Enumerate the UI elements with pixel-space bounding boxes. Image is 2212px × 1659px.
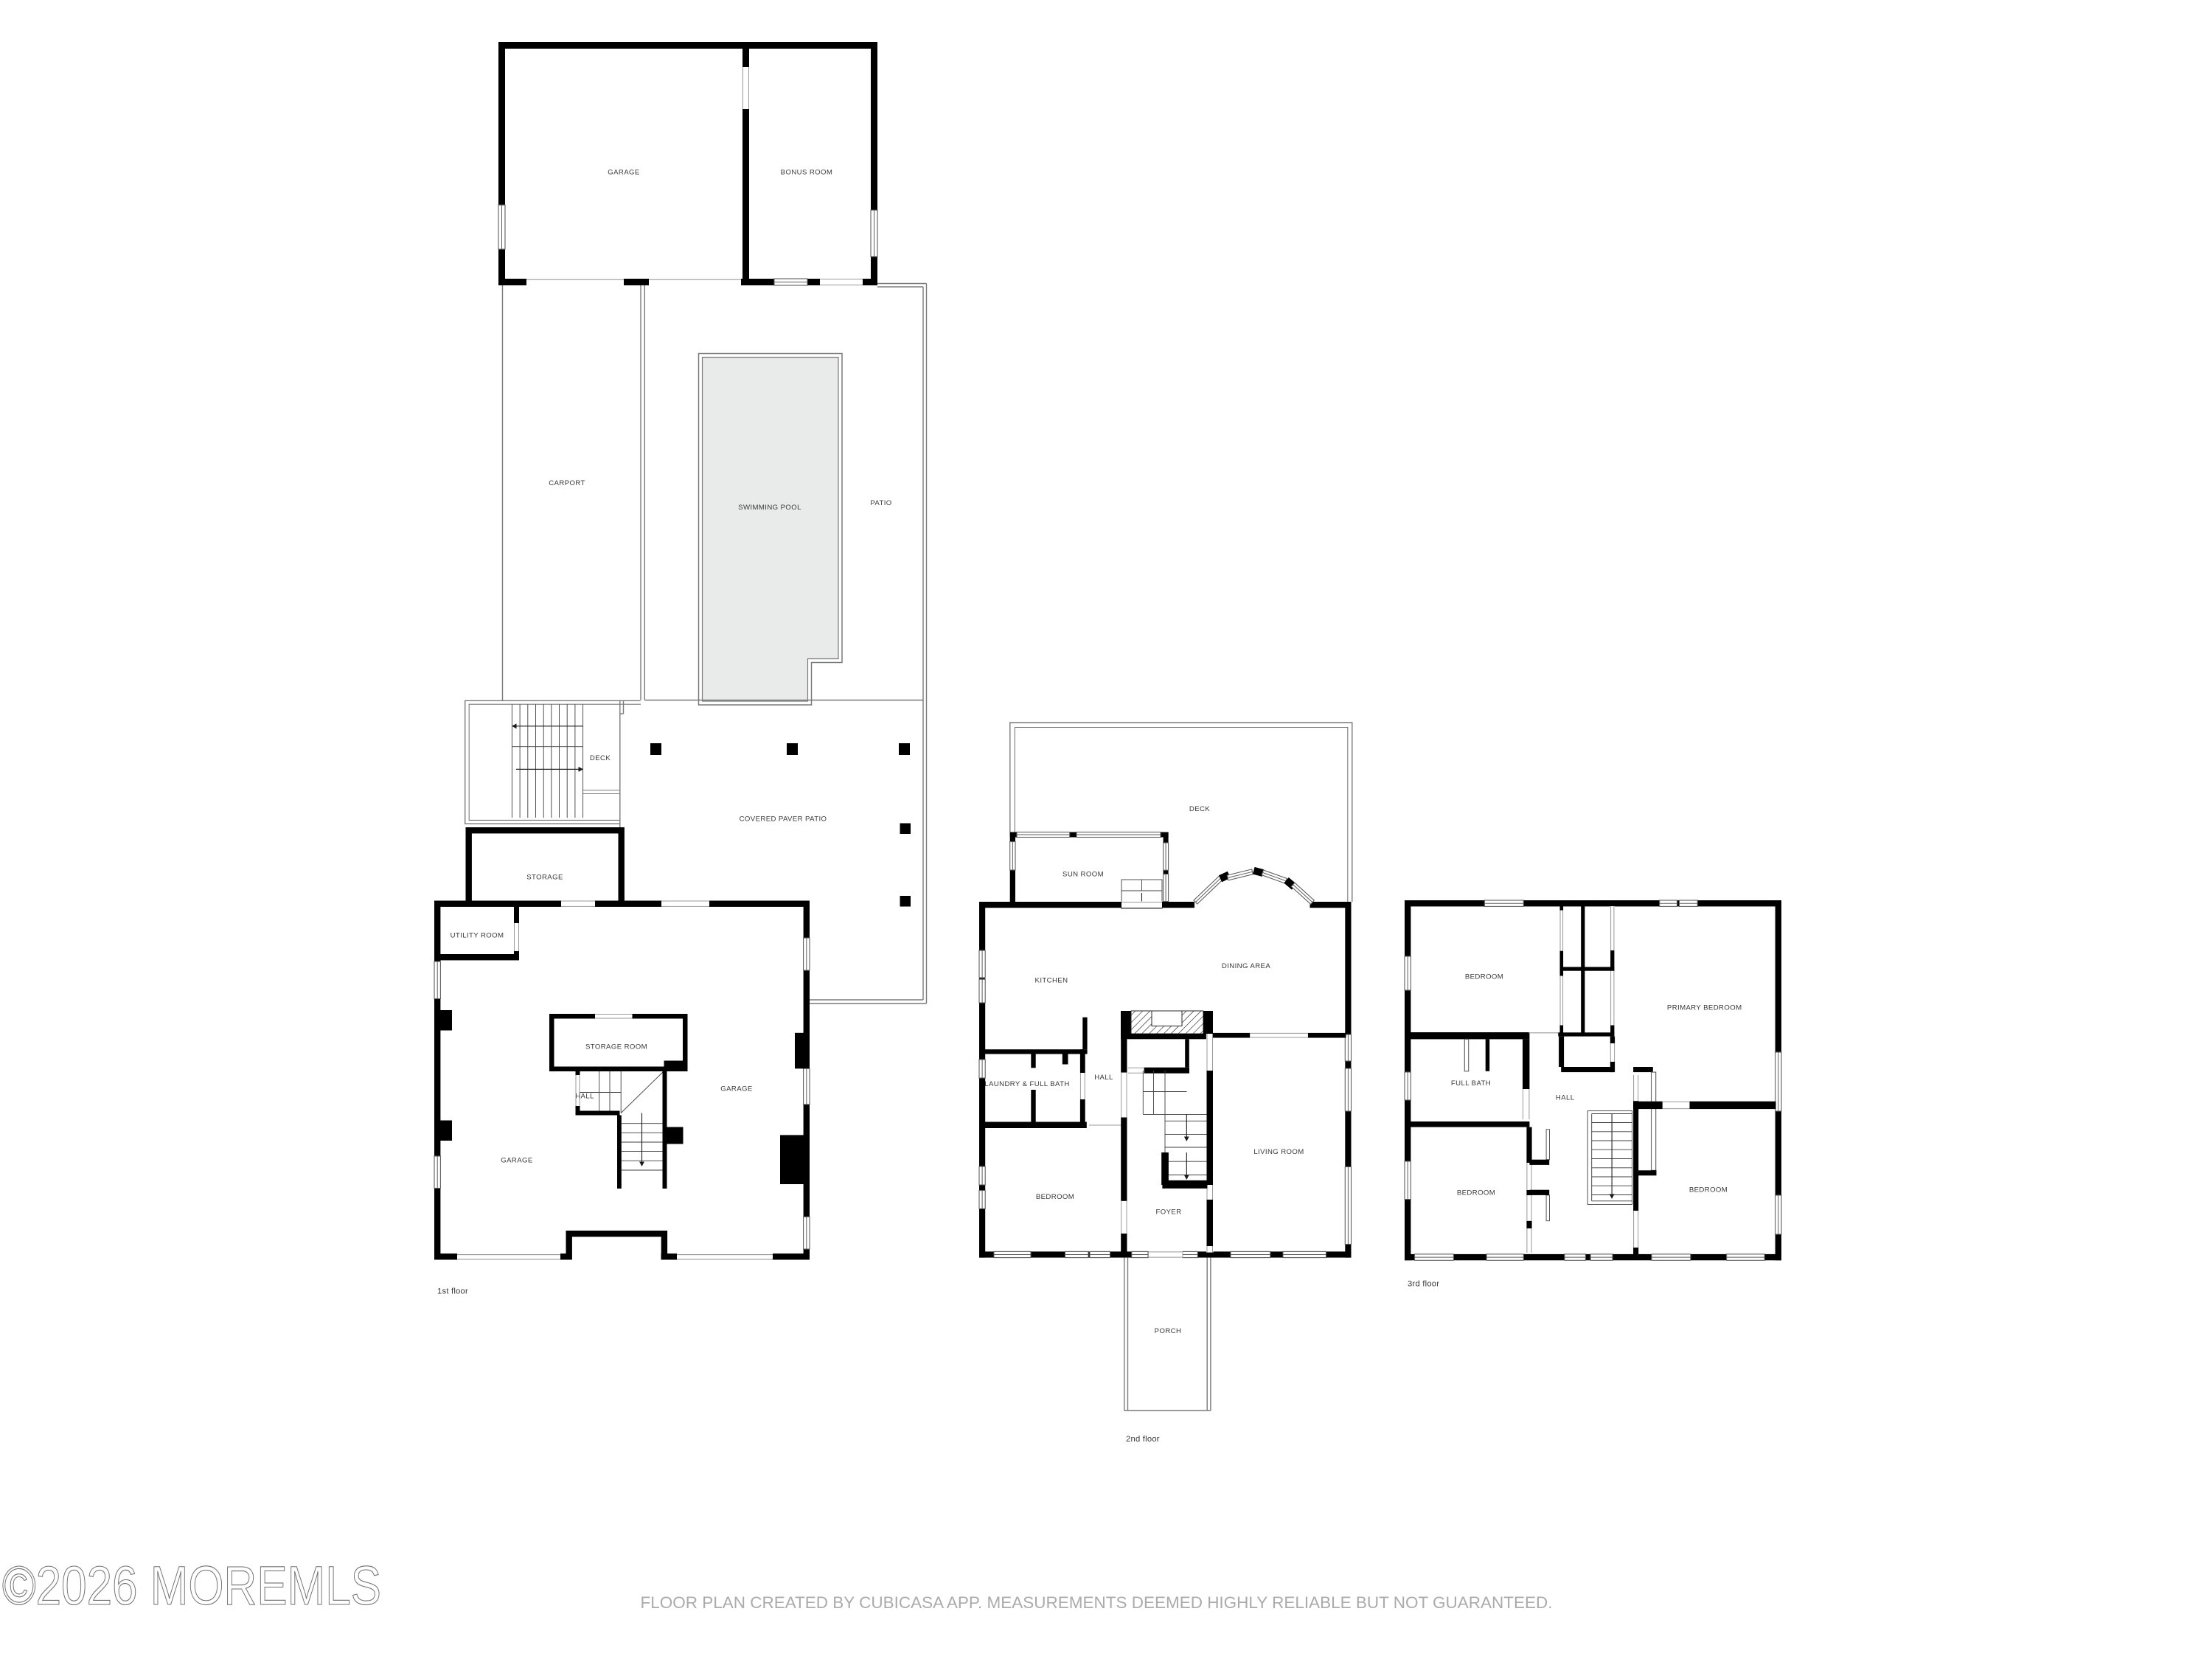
svg-text:BEDROOM: BEDROOM [1457,1189,1495,1197]
svg-text:GARAGE: GARAGE [608,169,639,177]
svg-text:SUN ROOM: SUN ROOM [1062,871,1104,879]
svg-text:BEDROOM: BEDROOM [1465,973,1503,981]
svg-text:GARAGE: GARAGE [720,1085,752,1093]
svg-text:HALL: HALL [1094,1074,1113,1082]
svg-text:HALL: HALL [1556,1094,1575,1102]
svg-text:BONUS ROOM: BONUS ROOM [781,169,833,177]
svg-text:PRIMARY BEDROOM: PRIMARY BEDROOM [1667,1004,1742,1012]
svg-text:KITCHEN: KITCHEN [1035,977,1068,985]
svg-text:HALL: HALL [575,1093,594,1101]
svg-text:1st floor: 1st floor [437,1287,468,1296]
svg-text:BEDROOM: BEDROOM [1689,1186,1728,1194]
svg-text:FULL BATH: FULL BATH [1451,1079,1491,1088]
svg-text:PORCH: PORCH [1155,1327,1182,1335]
svg-text:CARPORT: CARPORT [549,479,585,487]
svg-text:UTILITY ROOM: UTILITY ROOM [451,932,504,940]
svg-text:FLOOR PLAN CREATED BY CUBICASA: FLOOR PLAN CREATED BY CUBICASA APP. MEAS… [641,1593,1553,1612]
svg-text:STORAGE: STORAGE [526,874,563,882]
svg-text:3rd floor: 3rd floor [1408,1280,1439,1289]
svg-text:PATIO: PATIO [870,499,891,507]
svg-text:FOYER: FOYER [1155,1208,1181,1217]
svg-text:©2026 MOREMLS: ©2026 MOREMLS [2,1555,381,1616]
svg-text:GARAGE: GARAGE [501,1157,532,1165]
svg-text:LAUNDRY & FULL BATH: LAUNDRY & FULL BATH [984,1080,1069,1088]
svg-text:LIVING ROOM: LIVING ROOM [1253,1148,1304,1156]
svg-text:2nd floor: 2nd floor [1126,1435,1160,1444]
svg-text:STORAGE ROOM: STORAGE ROOM [585,1043,647,1051]
svg-text:DECK: DECK [590,754,611,762]
svg-text:DECK: DECK [1189,805,1210,813]
svg-text:SWIMMING POOL: SWIMMING POOL [738,504,801,512]
svg-text:BEDROOM: BEDROOM [1036,1193,1074,1201]
svg-text:DINING AREA: DINING AREA [1222,962,1270,970]
svg-text:COVERED PAVER PATIO: COVERED PAVER PATIO [740,815,827,824]
